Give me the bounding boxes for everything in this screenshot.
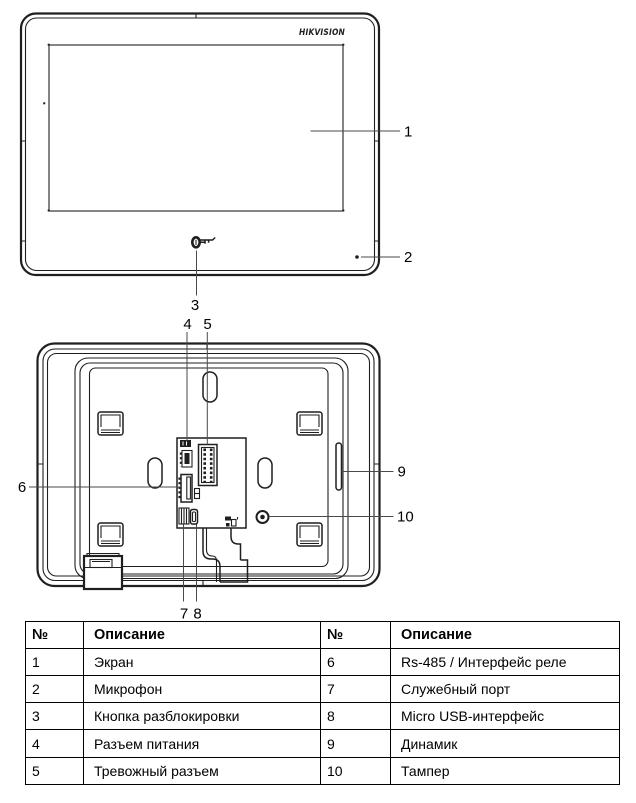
callout-label-9: 9 bbox=[398, 464, 406, 481]
legend-cell: 7 bbox=[321, 675, 391, 702]
legend-cell: Служебный порт bbox=[391, 675, 620, 702]
manual-page: HIKVISION bbox=[0, 0, 636, 803]
callout-label-6: 6 bbox=[18, 479, 26, 496]
legend-table: № Описание № Описание 1 Экран 6 Rs-485 /… bbox=[25, 621, 620, 785]
device-diagram: HIKVISION bbox=[0, 0, 636, 620]
mounting-hook bbox=[297, 523, 322, 546]
screen-area bbox=[49, 45, 343, 211]
legend-cell: 4 bbox=[26, 730, 84, 757]
legend-cell: 3 bbox=[26, 703, 84, 730]
legend-cell: Динамик bbox=[391, 730, 620, 757]
legend-header-num-left: № bbox=[26, 622, 84, 649]
legend-row: 3 Кнопка разблокировки 8 Micro USB-интер… bbox=[26, 703, 620, 730]
callout-label-4: 4 bbox=[183, 316, 191, 333]
front-view-drawing: HIKVISION bbox=[21, 14, 379, 276]
legend-header-desc-right: Описание bbox=[391, 622, 620, 649]
callout-label-10: 10 bbox=[397, 509, 414, 526]
legend-cell: Тревожный разъем bbox=[84, 757, 321, 784]
legend-cell: 2 bbox=[26, 675, 84, 702]
callout-label-1: 1 bbox=[404, 124, 412, 141]
legend-cell: Микрофон bbox=[84, 675, 321, 702]
legend-cell: Micro USB-интерфейс bbox=[391, 703, 620, 730]
legend-cell: 6 bbox=[321, 648, 391, 675]
legend-row: 5 Тревожный разъем 10 Тампер bbox=[26, 757, 620, 784]
legend-cell: 5 bbox=[26, 757, 84, 784]
legend-cell: Тампер bbox=[391, 757, 620, 784]
legend-cell: 10 bbox=[321, 757, 391, 784]
legend-cell: Экран bbox=[84, 648, 321, 675]
brand-logo: HIKVISION bbox=[299, 28, 345, 38]
legend-cell: 8 bbox=[321, 703, 391, 730]
callout-label-3: 3 bbox=[191, 297, 199, 314]
legend-cell: Кнопка разблокировки bbox=[84, 703, 321, 730]
legend-cell: 1 bbox=[26, 648, 84, 675]
back-view-drawing bbox=[38, 344, 380, 590]
mounting-hook bbox=[98, 523, 123, 546]
legend-row: 1 Экран 6 Rs-485 / Интерфейс реле bbox=[26, 648, 620, 675]
callout-label-5: 5 bbox=[203, 316, 211, 333]
wiring-slot bbox=[148, 458, 162, 488]
legend-header-num-right: № bbox=[321, 622, 391, 649]
callout-label-7: 7 bbox=[180, 606, 188, 621]
mounting-hook bbox=[98, 412, 123, 435]
legend-cell: Разъем питания bbox=[84, 730, 321, 757]
callouts: 1 2 3 4 5 6 7 8 9 10 bbox=[18, 124, 414, 621]
wiring-slot bbox=[203, 372, 217, 402]
terminal-board bbox=[177, 438, 246, 528]
legend-header-row: № Описание № Описание bbox=[26, 622, 620, 649]
unlock-key-icon bbox=[192, 237, 215, 247]
callout-label-2: 2 bbox=[404, 249, 412, 266]
speaker-slot bbox=[336, 443, 342, 490]
wiring-slot bbox=[258, 458, 272, 488]
legend-header-desc-left: Описание bbox=[84, 622, 321, 649]
legend-cell: 9 bbox=[321, 730, 391, 757]
legend-row: 4 Разъем питания 9 Динамик bbox=[26, 730, 620, 757]
cable-clamp bbox=[84, 554, 122, 590]
legend-cell: Rs-485 / Интерфейс реле bbox=[391, 648, 620, 675]
legend-row: 2 Микрофон 7 Служебный порт bbox=[26, 675, 620, 702]
callout-label-8: 8 bbox=[193, 606, 201, 621]
microphone-hole bbox=[355, 255, 359, 259]
mounting-hook bbox=[297, 412, 322, 435]
tamper-button bbox=[257, 511, 269, 523]
